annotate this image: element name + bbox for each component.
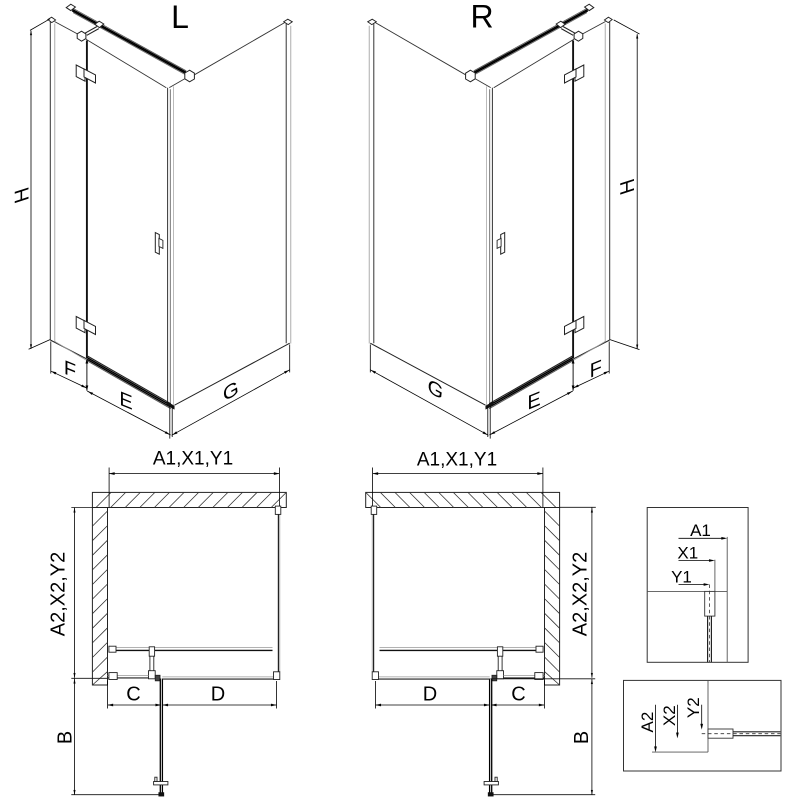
- svg-text:D: D: [423, 684, 437, 706]
- svg-text:D: D: [211, 684, 225, 706]
- svg-text:B: B: [55, 731, 77, 744]
- svg-text:X2: X2: [660, 705, 679, 726]
- svg-text:C: C: [511, 684, 525, 706]
- svg-text:R: R: [470, 0, 493, 34]
- svg-text:L: L: [171, 0, 189, 35]
- svg-text:C: C: [126, 684, 140, 706]
- svg-text:Y2: Y2: [684, 697, 703, 718]
- svg-text:X1: X1: [677, 543, 698, 562]
- svg-text:A2: A2: [638, 712, 657, 733]
- svg-text:Y1: Y1: [671, 567, 692, 586]
- svg-text:A1: A1: [690, 521, 711, 540]
- svg-text:A2,X2,Y2: A2,X2,Y2: [570, 552, 592, 637]
- svg-text:A1,X1,Y1: A1,X1,Y1: [417, 450, 497, 471]
- svg-text:A2,X2,Y2: A2,X2,Y2: [48, 552, 70, 637]
- svg-text:A1,X1,Y1: A1,X1,Y1: [153, 448, 233, 469]
- svg-text:B: B: [571, 731, 593, 744]
